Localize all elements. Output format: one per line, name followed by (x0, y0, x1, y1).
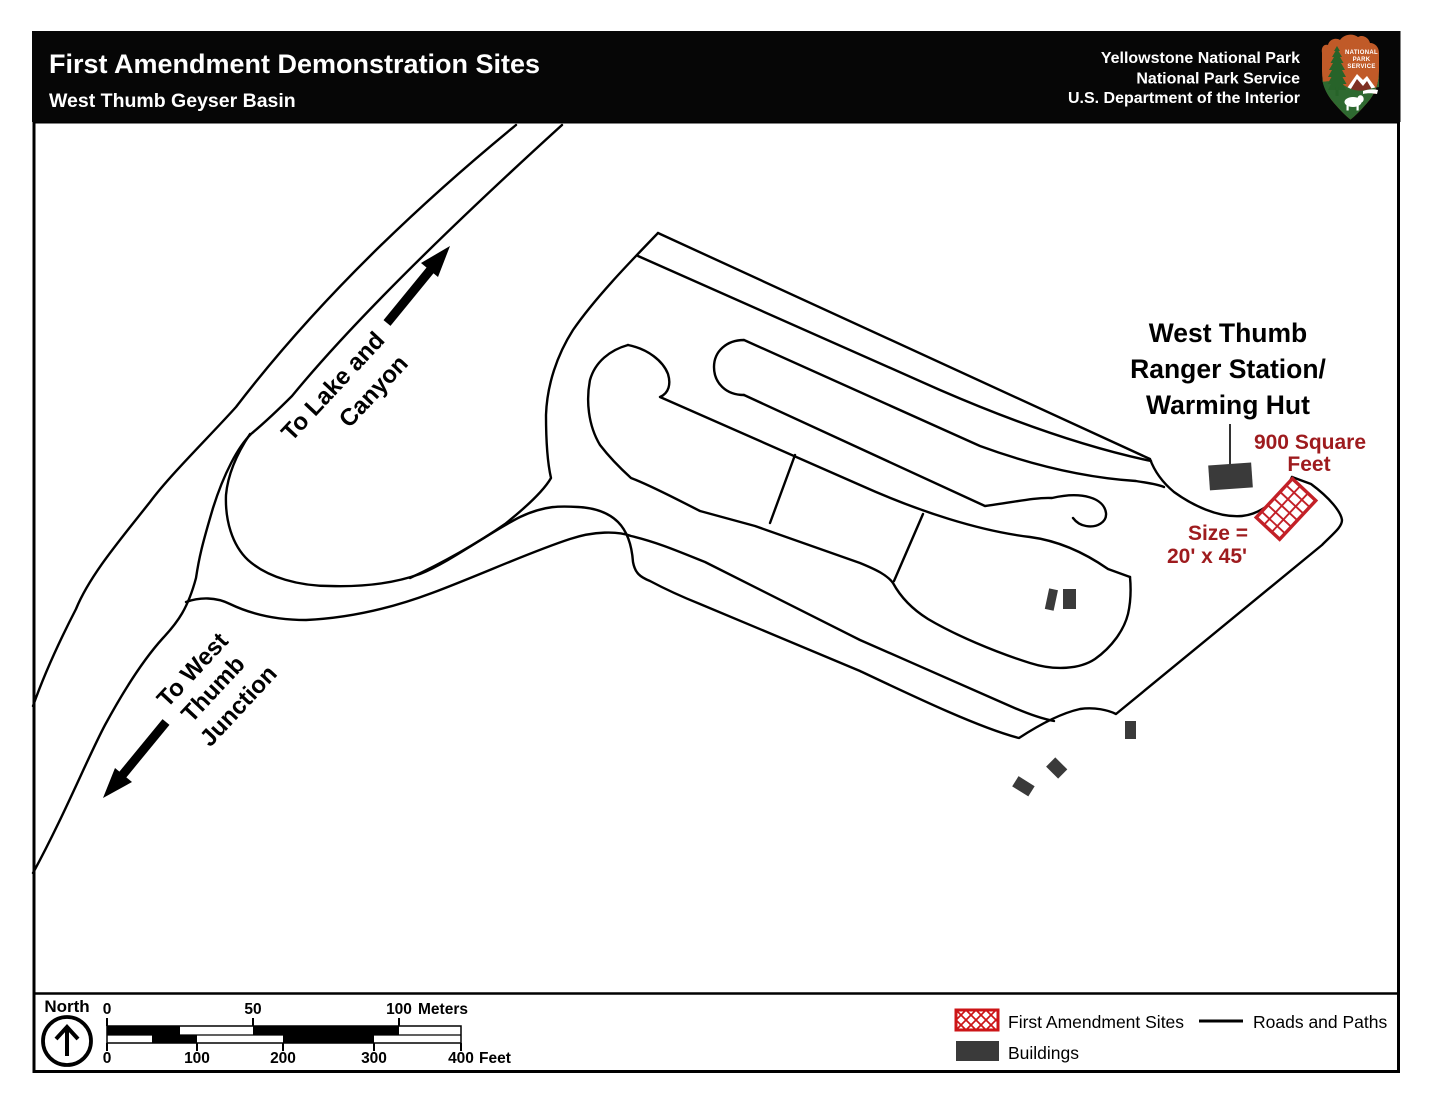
svg-text:First Amendment Demonstration: First Amendment Demonstration Sites (49, 49, 540, 79)
svg-text:200: 200 (270, 1050, 296, 1067)
svg-text:PARK: PARK (1353, 57, 1371, 63)
svg-text:Feet: Feet (1287, 453, 1330, 476)
svg-text:SERVICE: SERVICE (1347, 64, 1375, 70)
svg-text:First Amendment Sites: First Amendment Sites (1008, 1012, 1184, 1032)
svg-text:Size =: Size = (1188, 522, 1248, 545)
svg-text:100: 100 (386, 1001, 412, 1018)
svg-text:0: 0 (103, 1001, 112, 1018)
svg-text:300: 300 (361, 1050, 387, 1067)
svg-text:Buildings: Buildings (1008, 1043, 1079, 1063)
svg-text:Ranger Station/: Ranger Station/ (1130, 354, 1326, 384)
svg-text:Feet: Feet (479, 1050, 511, 1067)
svg-text:NATIONAL: NATIONAL (1345, 50, 1378, 56)
svg-text:West Thumb Geyser Basin: West Thumb Geyser Basin (49, 90, 296, 112)
svg-text:Roads and Paths: Roads and Paths (1253, 1012, 1388, 1032)
svg-text:20' x 45': 20' x 45' (1167, 545, 1247, 568)
svg-text:Yellowstone National Park: Yellowstone National Park (1101, 50, 1300, 67)
svg-text:U.S. Department of the Interio: U.S. Department of the Interior (1068, 90, 1300, 107)
svg-text:0: 0 (103, 1050, 112, 1067)
svg-text:50: 50 (244, 1001, 261, 1018)
svg-text:900 Square: 900 Square (1254, 431, 1366, 454)
svg-text:West Thumb: West Thumb (1149, 318, 1308, 348)
svg-text:100: 100 (184, 1050, 210, 1067)
svg-text:Warming Hut: Warming Hut (1146, 390, 1310, 420)
svg-text:North: North (44, 997, 89, 1016)
svg-text:National Park Service: National Park Service (1136, 71, 1300, 88)
svg-text:400: 400 (448, 1050, 474, 1067)
svg-text:Meters: Meters (418, 1001, 468, 1018)
